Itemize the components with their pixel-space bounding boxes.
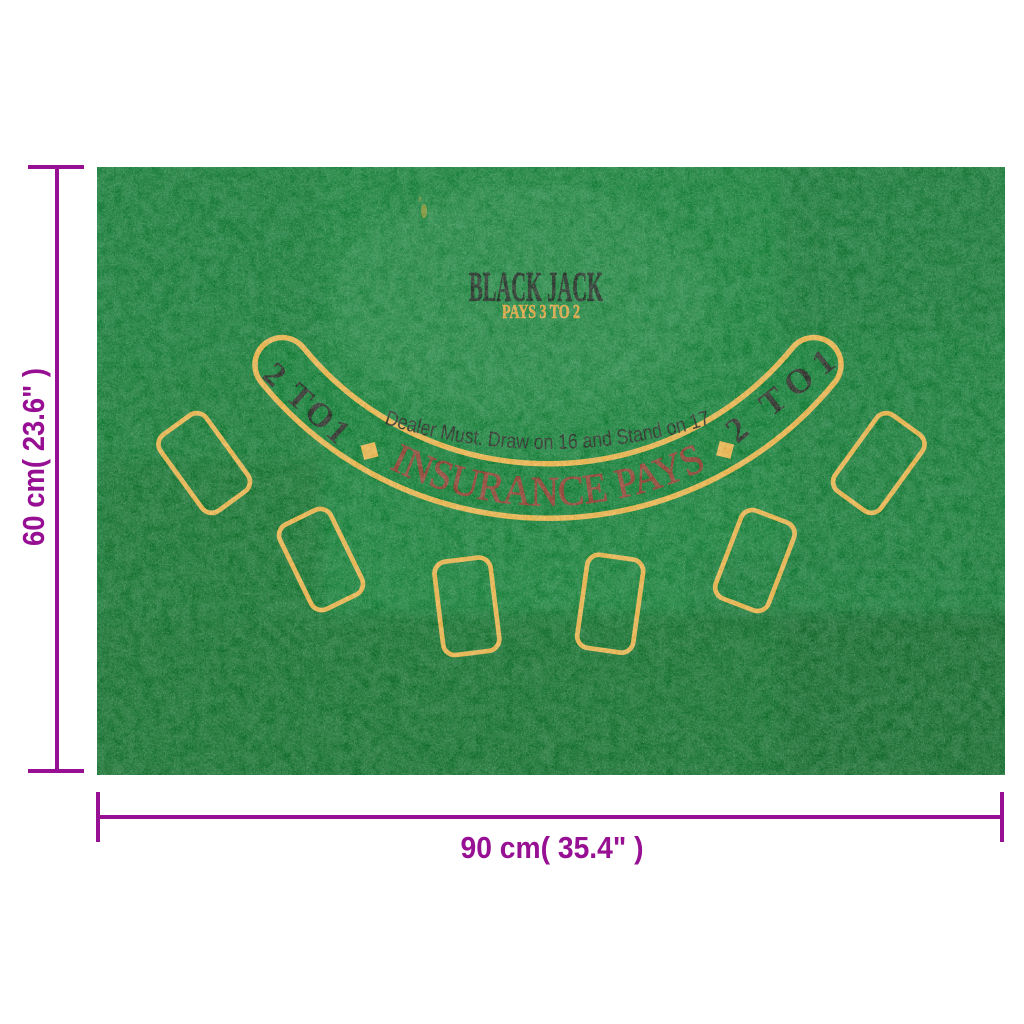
svg-text:60 cm( 23.6" ): 60 cm( 23.6" ) [16, 368, 51, 546]
svg-text:90 cm( 35.4" ): 90 cm( 35.4" ) [461, 830, 644, 865]
